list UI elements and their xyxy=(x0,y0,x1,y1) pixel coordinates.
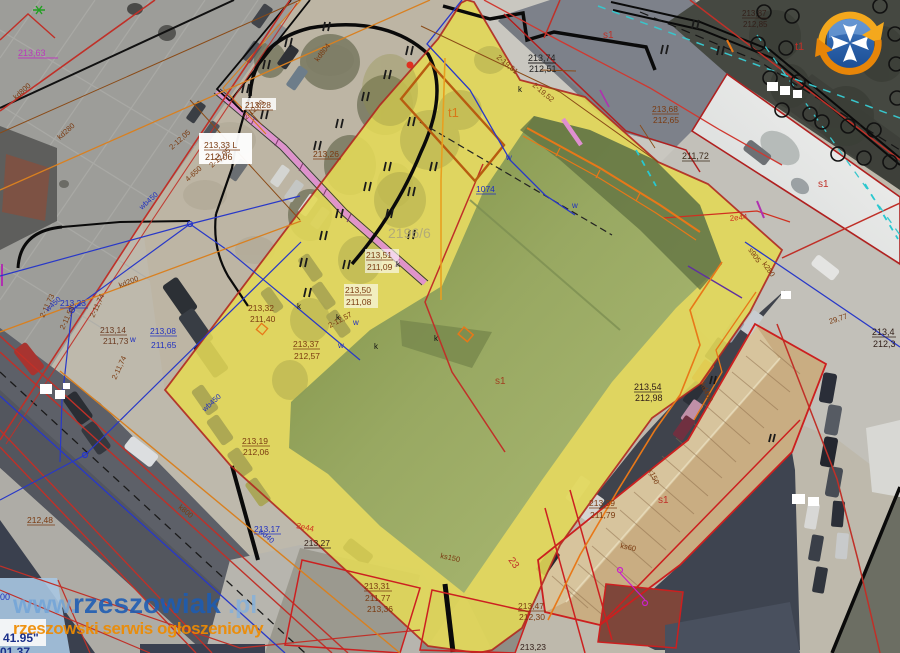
svg-text:211,65: 211,65 xyxy=(151,340,177,350)
svg-text:w: w xyxy=(352,318,359,327)
svg-text:212,85: 212,85 xyxy=(743,20,768,29)
svg-text:212,51: 212,51 xyxy=(529,64,557,74)
svg-text:s1: s1 xyxy=(658,495,669,506)
svg-text:rzeszowiak: rzeszowiak xyxy=(73,588,221,619)
svg-text:s1: s1 xyxy=(495,376,506,387)
svg-text:213,23: 213,23 xyxy=(520,642,546,652)
svg-text:213,17: 213,17 xyxy=(254,524,280,534)
svg-text:213,14: 213,14 xyxy=(100,325,126,335)
svg-text:212,65: 212,65 xyxy=(653,115,679,125)
svg-text:1074: 1074 xyxy=(476,184,495,194)
svg-text:213,51: 213,51 xyxy=(366,250,392,260)
svg-text:211,40: 211,40 xyxy=(250,314,276,324)
svg-text:213,50: 213,50 xyxy=(345,285,371,295)
svg-text:s1: s1 xyxy=(818,179,829,190)
svg-text:213,68: 213,68 xyxy=(652,104,678,114)
svg-text:213,39: 213,39 xyxy=(589,498,615,508)
svg-text:w: w xyxy=(571,201,578,210)
svg-text:www.: www. xyxy=(12,591,77,619)
svg-text:213,26: 213,26 xyxy=(313,149,339,159)
svg-text:w: w xyxy=(337,341,344,350)
svg-text:w: w xyxy=(129,335,136,344)
svg-text:41.95": 41.95" xyxy=(3,631,39,645)
svg-text:213,23: 213,23 xyxy=(60,298,86,308)
svg-text:212,06: 212,06 xyxy=(243,447,269,457)
svg-text:212,48: 212,48 xyxy=(27,515,53,525)
svg-text:211,79: 211,79 xyxy=(590,510,616,520)
svg-text:211,72: 211,72 xyxy=(682,151,709,161)
svg-text:213,08: 213,08 xyxy=(150,326,176,336)
svg-text:213,63: 213,63 xyxy=(18,48,46,58)
svg-text:213,54: 213,54 xyxy=(634,382,662,392)
svg-text:2e44: 2e44 xyxy=(729,212,748,223)
svg-text:t1: t1 xyxy=(448,105,459,120)
svg-text:211,77: 211,77 xyxy=(365,593,391,603)
svg-text:212,30: 212,30 xyxy=(519,612,545,622)
svg-text:t1: t1 xyxy=(795,41,804,53)
svg-text:.pl: .pl xyxy=(228,591,257,619)
svg-text:213,4: 213,4 xyxy=(872,327,895,337)
svg-text:213,74: 213,74 xyxy=(528,53,556,63)
svg-text:213,37: 213,37 xyxy=(293,339,319,349)
svg-text:212,57: 212,57 xyxy=(294,351,320,361)
svg-text:211,09: 211,09 xyxy=(367,262,393,272)
svg-text:211,73: 211,73 xyxy=(103,336,129,346)
svg-text:00: 00 xyxy=(0,592,10,602)
svg-text:213,19: 213,19 xyxy=(242,436,268,446)
svg-text:211,08: 211,08 xyxy=(346,297,372,307)
svg-text:213,87: 213,87 xyxy=(742,9,767,18)
svg-text:213,47: 213,47 xyxy=(518,601,544,611)
svg-text:rzeszowski serwis ogłoszeniowy: rzeszowski serwis ogłoszeniowy xyxy=(13,619,264,638)
svg-text:s1: s1 xyxy=(603,30,614,41)
svg-text:213,32: 213,32 xyxy=(248,303,274,313)
svg-text:212,98: 212,98 xyxy=(635,393,663,403)
svg-text:213,27: 213,27 xyxy=(304,538,330,548)
svg-text:01.37: 01.37 xyxy=(0,645,30,653)
svg-text:212,3: 212,3 xyxy=(873,339,896,349)
svg-text:213,36: 213,36 xyxy=(367,604,393,614)
svg-text:213,33 L: 213,33 L xyxy=(204,140,237,150)
svg-text:2196/6: 2196/6 xyxy=(388,225,431,241)
svg-text:w: w xyxy=(505,153,512,162)
svg-text:213,31: 213,31 xyxy=(364,581,390,591)
